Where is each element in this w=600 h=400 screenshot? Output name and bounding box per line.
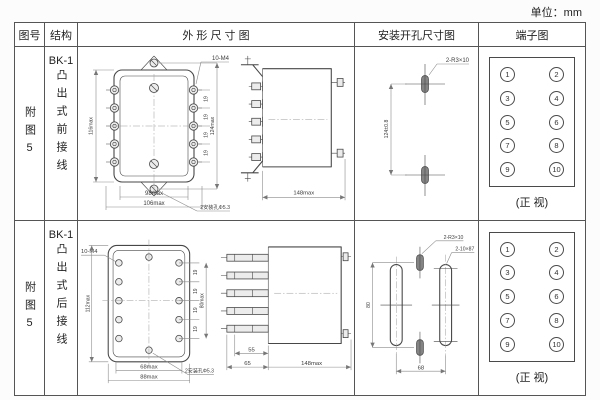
dimensions: 148max — [263, 159, 346, 200]
terminal-pin: 4 — [549, 91, 564, 106]
header-mounting: 安装开孔尺寸图 — [355, 23, 479, 47]
row2-fig-no-cell: 附图5 — [15, 221, 45, 395]
row1-outline-cell: 116max 19 19 19 19 124max 10-M4 98max 10… — [78, 47, 355, 221]
long-slot-label: 2-10×87 — [455, 246, 474, 252]
row2-structure-cell: BK-1 凸出式后接线 — [45, 221, 78, 395]
row1-outline-side-view: 148max — [233, 51, 351, 216]
terminal-pin: 3 — [500, 265, 515, 280]
dim-depth: 148max — [293, 190, 314, 196]
terminal-right-column: 2 4 6 8 10 — [549, 67, 564, 177]
unit-label: 单位：mm — [531, 4, 582, 20]
dim-pitch-1: 19 — [193, 269, 199, 275]
header-fig-no: 图号 — [15, 23, 45, 47]
row2-model: BK-1 — [49, 229, 73, 241]
row2-terminal-cell: 1 3 5 7 9 2 4 6 8 10 (正 视) — [479, 221, 585, 395]
dim-slot-spacing: 68 — [417, 365, 424, 371]
row1-fig-no-cell: 附图5 — [15, 47, 45, 221]
row1-model: BK-1 — [49, 55, 73, 67]
small-slot-label: 2-R3×10 — [443, 234, 463, 240]
dim-stud-length: 55 — [248, 347, 255, 353]
row2-outline-front-view: 10-M4 112max 19 19 19 19 80max 68max 88m… — [79, 228, 215, 388]
terminal-pin: 2 — [549, 242, 564, 257]
dim-height: 116max — [89, 116, 95, 134]
terminal-pin: 7 — [500, 138, 515, 153]
terminal-pin: 5 — [500, 115, 515, 130]
spec-table: 图号 结构 外 形 尺 寸 图 安装开孔尺寸图 端子图 附图5 BK-1 凸出式… — [14, 22, 586, 396]
terminal-pin: 8 — [549, 313, 564, 328]
dimensions: 55 65 148max — [227, 334, 351, 369]
terminal-pin: 1 — [500, 242, 515, 257]
mounting-hole-note: 2安装孔Φ5.3 — [200, 203, 230, 211]
row2-outline-side-view: 55 65 148max — [217, 227, 353, 390]
dim-width-outer: 88max — [140, 374, 158, 380]
terminal-left-column: 1 3 5 7 9 — [500, 242, 515, 352]
row1-terminal-cell: 1 3 5 7 9 2 4 6 8 10 (正 视) — [479, 47, 585, 221]
dim-pitch-1: 19 — [204, 96, 210, 102]
terminal-left-column: 1 3 5 7 9 — [500, 67, 515, 177]
dim-width-inner: 68max — [140, 365, 158, 371]
terminal-pin: 3 — [500, 91, 515, 106]
row1-outline-front-view: 116max 19 19 19 19 124max 10-M4 98max 10… — [81, 50, 231, 218]
terminal-pin: 9 — [500, 162, 515, 177]
terminal-caption: (正 视) — [516, 194, 548, 210]
dim-pitch-2: 19 — [204, 114, 210, 120]
mounting-slots — [380, 246, 459, 363]
terminal-studs — [249, 81, 263, 162]
row1-structure-desc: 凸出式前接线 — [53, 69, 69, 177]
terminal-pin: 7 — [500, 313, 515, 328]
terminal-pin: 4 — [549, 265, 564, 280]
terminal-pin: 6 — [549, 115, 564, 130]
row1-mounting-cell: 124±0.8 2-R3×10 — [355, 47, 479, 221]
thread-label: 10-M4 — [212, 56, 230, 62]
header-terminal: 端子图 — [479, 23, 585, 47]
row2-mounting-diagram: 80 68 2-R3×10 2-10×87 — [358, 227, 476, 390]
rear-screws — [331, 79, 345, 158]
row2-fig-no: 附图5 — [22, 281, 38, 336]
dim-side-height: 80max — [200, 293, 206, 309]
terminal-pin: 2 — [549, 67, 564, 82]
row2-outline-cell: 10-M4 112max 19 19 19 19 80max 68max 88m… — [78, 221, 355, 395]
header-outline: 外 形 尺 寸 图 — [78, 23, 355, 47]
row1-mounting-diagram: 124±0.8 2-R3×10 — [361, 50, 473, 218]
dimensions: 116max 19 19 19 19 124max 10-M4 98max 10… — [89, 56, 231, 211]
dim-height: 112max — [85, 294, 91, 312]
terminal-pin: 9 — [500, 337, 515, 352]
terminal-pin: 10 — [549, 162, 564, 177]
terminal-pin: 1 — [500, 67, 515, 82]
dim-slot-height: 80 — [366, 302, 372, 308]
dim-width-outer: 106max — [143, 201, 164, 207]
dim-side-height: 124max — [210, 116, 216, 135]
dim-pitch-4: 19 — [193, 326, 199, 332]
case-profile — [268, 246, 351, 343]
thread-label: 10-M4 — [81, 249, 98, 255]
terminal-diagram: 1 3 5 7 9 2 4 6 8 10 — [489, 57, 575, 187]
dimensions: 10-M4 112max 19 19 19 19 80max 68max 88m… — [81, 245, 214, 383]
row1-fig-no: 附图5 — [22, 106, 38, 161]
terminal-caption: (正 视) — [516, 369, 548, 385]
terminal-pin: 10 — [549, 337, 564, 352]
dim-pitch-3: 19 — [193, 307, 199, 313]
dim-pitch-4: 19 — [204, 150, 210, 156]
dim-pitch-3: 19 — [204, 132, 210, 138]
terminal-diagram: 1 3 5 7 9 2 4 6 8 10 — [489, 232, 575, 362]
dim-pitch-2: 19 — [193, 288, 199, 294]
dim-slot-spacing: 124±0.8 — [384, 119, 390, 138]
terminal-pin: 8 — [549, 138, 564, 153]
mounting-hole-note: 2安装孔Φ5.3 — [185, 367, 214, 374]
mounting-slots — [405, 64, 445, 196]
terminal-pin: 6 — [549, 289, 564, 304]
center-lines — [108, 74, 200, 192]
row1-structure-cell: BK-1 凸出式前接线 — [45, 47, 78, 221]
terminal-right-column: 2 4 6 8 10 — [549, 242, 564, 352]
dim-depth: 148max — [301, 361, 322, 367]
header-structure: 结构 — [45, 23, 78, 47]
row2-mounting-cell: 80 68 2-R3×10 2-10×87 — [355, 221, 479, 395]
dim-offset: 65 — [244, 361, 251, 367]
row2-structure-desc: 凸出式后接线 — [53, 243, 69, 351]
slot-label: 2-R3×10 — [445, 58, 469, 64]
terminal-pin: 5 — [500, 289, 515, 304]
terminal-studs — [221, 254, 268, 332]
